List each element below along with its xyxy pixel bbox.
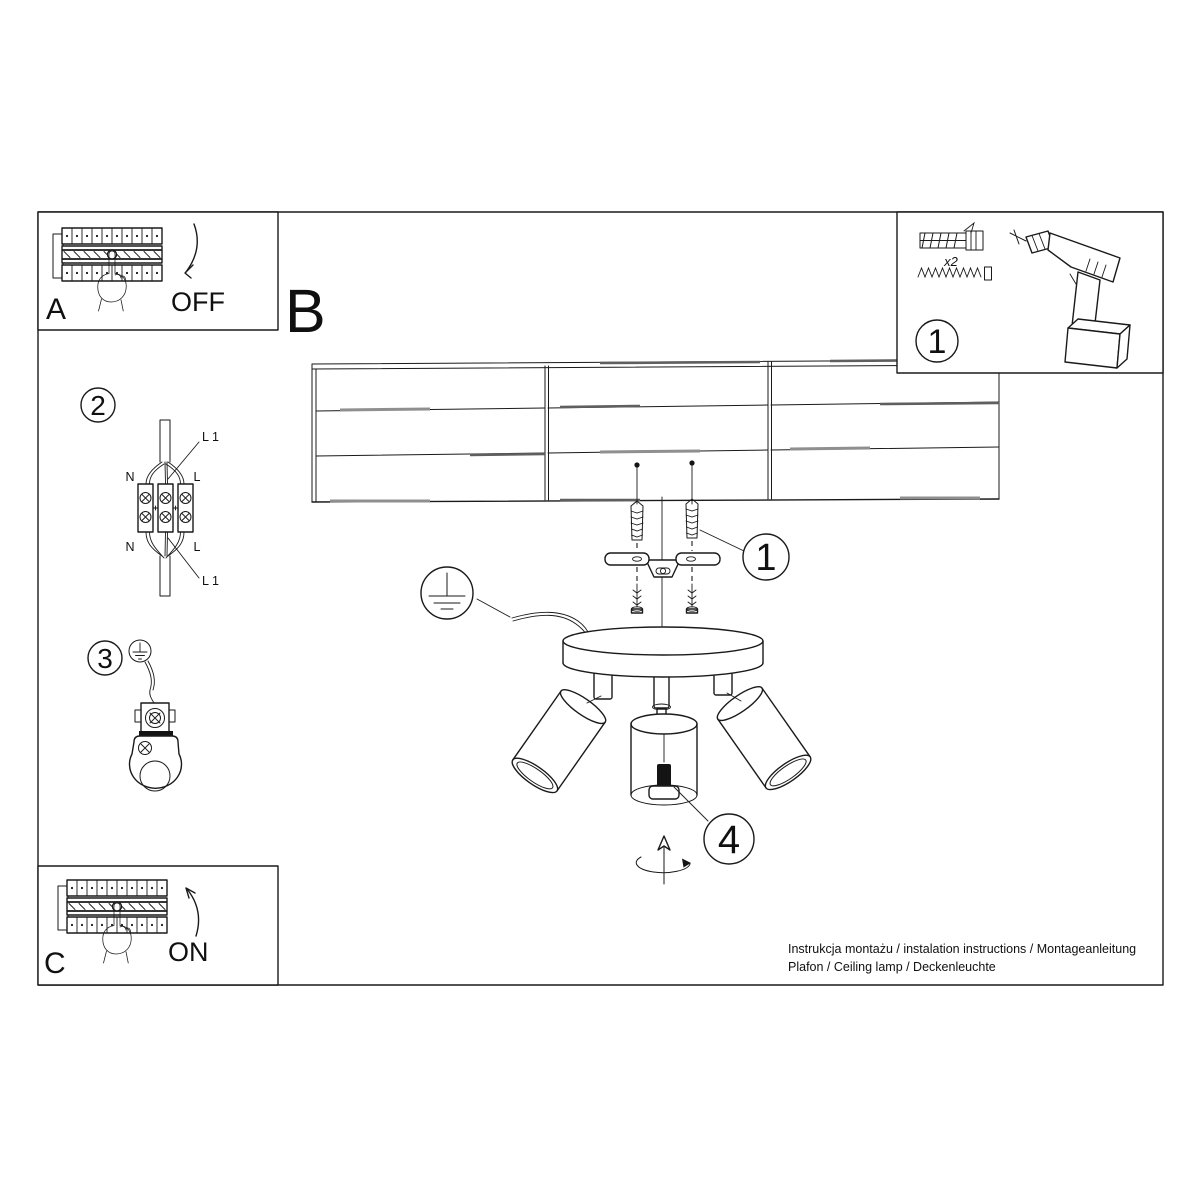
section-b-letter: B: [285, 277, 326, 345]
wire-label-n-top: N: [125, 470, 134, 484]
wire-label-l-top: L: [194, 470, 201, 484]
terminal-block-icon: [138, 484, 193, 532]
canopy-base-icon: [563, 627, 763, 677]
earth-symbol-icon: [129, 640, 151, 662]
mounting-ring-icon: [129, 736, 181, 791]
footer: Instrukcja montażu / instalation instruc…: [788, 942, 1136, 974]
mounting-screw-icon: [632, 584, 643, 613]
step-a-power-off: OFF A: [38, 212, 278, 330]
spotlight-center: [631, 714, 697, 805]
mounting-assembly: 1: [605, 466, 789, 626]
footer-line1: Instrukcja montażu / instalation instruc…: [788, 942, 1136, 956]
mount-step-number: 1: [755, 537, 776, 579]
wall-plug-icon: [686, 499, 698, 538]
bulb-step-number: 4: [718, 818, 740, 862]
mounting-screw-icon: [687, 584, 698, 613]
wiring-step-number: 2: [90, 390, 106, 421]
mounting-bracket-icon: [605, 553, 720, 577]
drill-point-right: [689, 460, 694, 465]
instruction-diagram: x2 1 OFF A: [0, 0, 1200, 1200]
on-label: ON: [168, 937, 209, 967]
step-c-letter: C: [44, 947, 66, 980]
wire-label-l1-top: L 1: [202, 430, 219, 444]
leader-line: [477, 599, 510, 617]
wall-plug-icon: [631, 501, 643, 540]
cable-top: [160, 420, 170, 462]
footer-line2: Plafon / Ceiling lamp / Deckenleuchte: [788, 960, 996, 974]
ceiling-lamp: 4: [421, 567, 815, 884]
spotlight-right: [713, 682, 815, 796]
step-a-letter: A: [46, 293, 66, 326]
instruction-sheet-page: x2 1 OFF A: [0, 0, 1200, 1200]
tools-step-number: 1: [928, 323, 947, 361]
spotlight-left: [508, 685, 610, 799]
rotation-arrow-icon: [636, 836, 691, 884]
ceiling-panels: [312, 360, 999, 502]
ground-step-number: 3: [97, 643, 113, 674]
ground-step: 3: [88, 640, 182, 791]
wire-label-l1-bottom: L 1: [202, 574, 219, 588]
step-c-power-on: ON C: [38, 866, 278, 985]
wire-label-l-bottom: L: [194, 540, 201, 554]
ground-terminal-icon: [135, 703, 175, 736]
off-label: OFF: [171, 287, 225, 317]
cable-bottom: [160, 556, 170, 596]
screw-quantity-label: x2: [943, 254, 959, 269]
ground-wire: [145, 661, 154, 703]
tools-box: x2 1: [897, 212, 1163, 373]
wire-label-n-bottom: N: [125, 540, 134, 554]
drill-point-left: [634, 462, 639, 467]
wiring-step: 2 N L N L L 1 L: [81, 388, 219, 596]
leader-line: [700, 530, 744, 551]
gu10-bulb-icon: [649, 764, 679, 799]
protective-earth-icon: [421, 567, 473, 619]
